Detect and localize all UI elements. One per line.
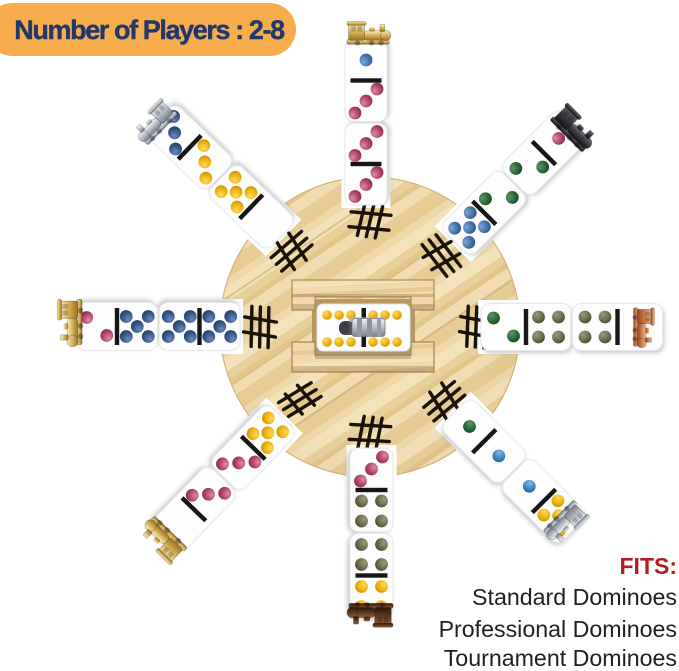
svg-text:Standard Dominoes: Standard Dominoes xyxy=(472,584,677,610)
svg-text:FITS:: FITS: xyxy=(620,553,678,579)
svg-text:Tournament Dominoes: Tournament Dominoes xyxy=(444,645,677,671)
svg-text:Number of Players : 2-8: Number of Players : 2-8 xyxy=(14,15,285,45)
svg-text:Professional Dominoes: Professional Dominoes xyxy=(439,616,677,642)
